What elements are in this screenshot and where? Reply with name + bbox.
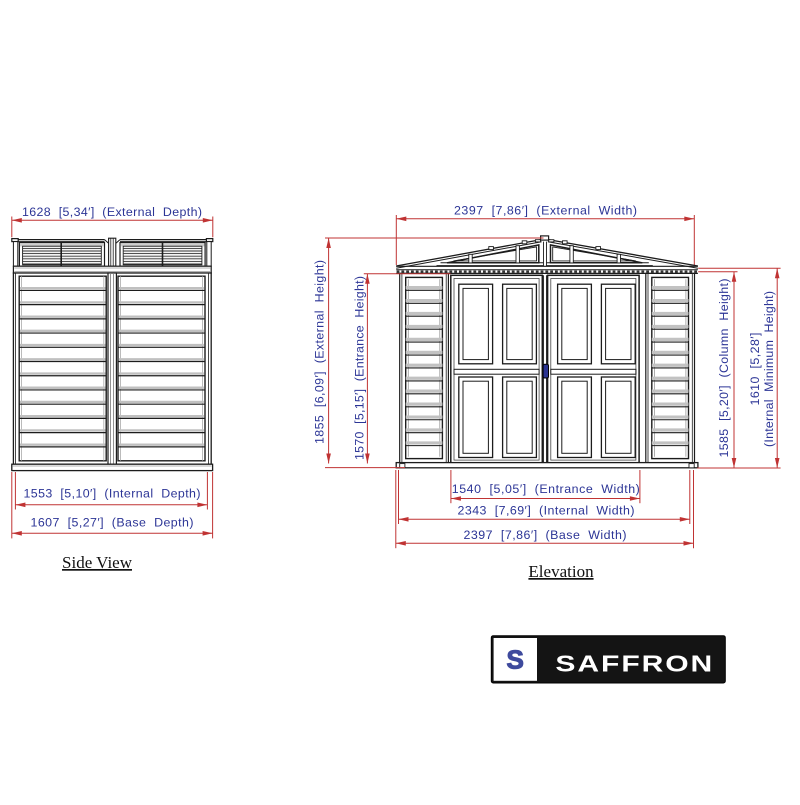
svg-text:1855 [6,09′] (External Heig: 1855 [6,09′] (External Height) [312, 260, 326, 444]
svg-text:2397 [7,86′] (Base Width): 2397 [7,86′] (Base Width) [464, 528, 627, 542]
svg-text:1540 [5,05′] (Entrance Widt: 1540 [5,05′] (Entrance Width) [452, 482, 640, 496]
svg-text:(Internal Minimum Height): (Internal Minimum Height) [762, 291, 776, 447]
svg-text:S: S [507, 645, 524, 675]
svg-text:1570 [5,15′] (Entrance Heig: 1570 [5,15′] (Entrance Height) [352, 276, 366, 460]
svg-text:Side View: Side View [62, 553, 133, 572]
svg-text:1553 [5,10′] (Internal Dept: 1553 [5,10′] (Internal Depth) [24, 487, 201, 501]
svg-text:1610 [5,28′]: 1610 [5,28′] [748, 333, 762, 406]
svg-text:2343 [7,69′] (Internal Widt: 2343 [7,69′] (Internal Width) [458, 504, 635, 518]
svg-text:1607 [5,27′] (Base Depth): 1607 [5,27′] (Base Depth) [31, 516, 194, 530]
svg-text:Elevation: Elevation [528, 562, 594, 581]
svg-text:1628 [5,34′] (External Dept: 1628 [5,34′] (External Depth) [22, 205, 202, 219]
svg-text:2397 [7,86′] (External Widt: 2397 [7,86′] (External Width) [454, 204, 637, 218]
svg-text:1585 [5,20′] (Column Height: 1585 [5,20′] (Column Height) [717, 279, 731, 458]
svg-text:SAFFRON: SAFFRON [555, 651, 714, 677]
